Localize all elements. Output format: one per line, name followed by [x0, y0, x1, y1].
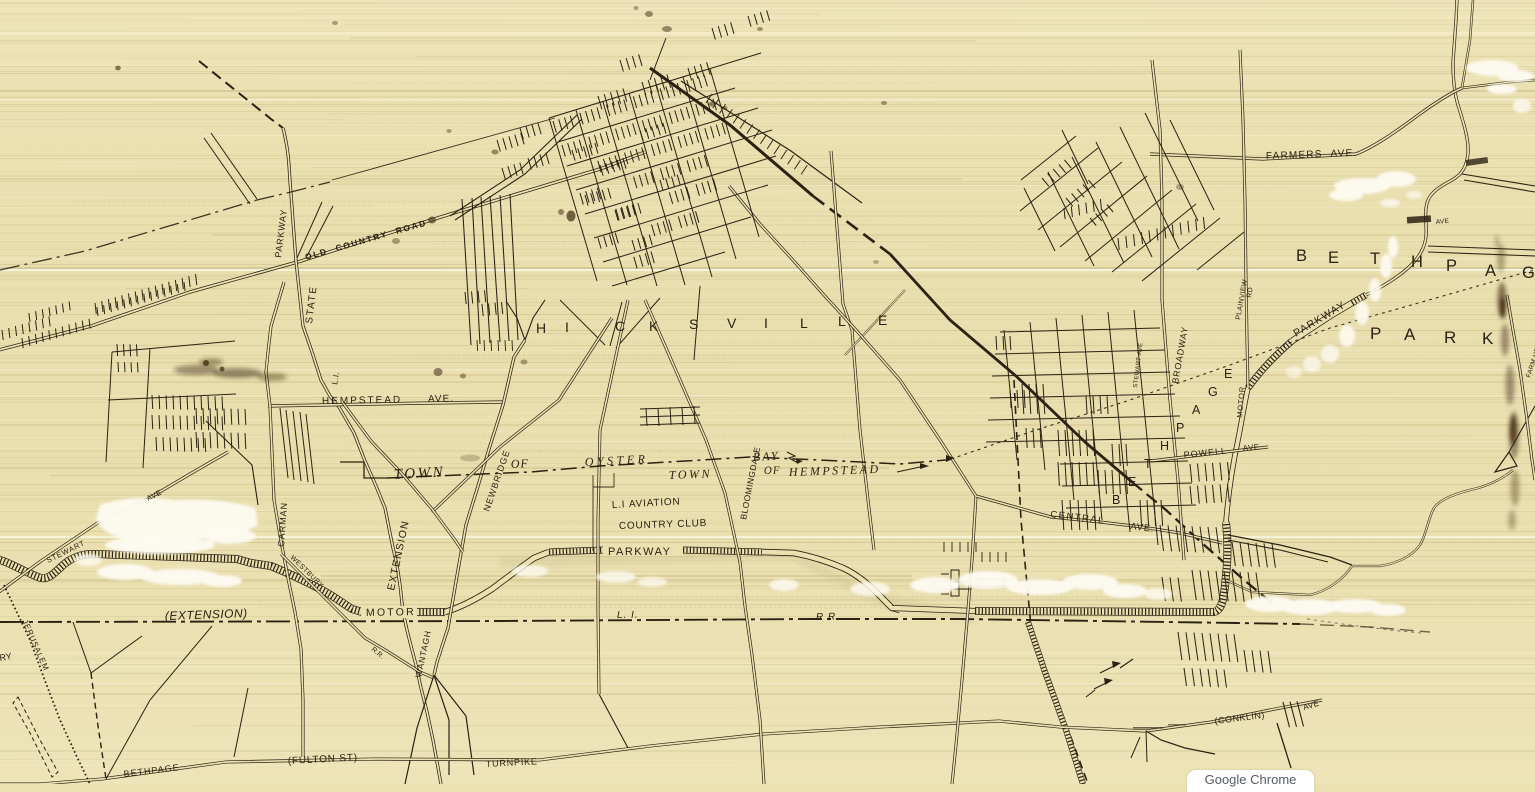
- svg-text:L: L: [800, 315, 808, 331]
- svg-text:I: I: [565, 319, 569, 335]
- svg-text:I: I: [764, 315, 768, 331]
- svg-text:L: L: [838, 313, 846, 329]
- svg-text:PARKWAY: PARKWAY: [608, 546, 671, 558]
- svg-text:E: E: [1224, 367, 1232, 381]
- svg-text:K: K: [649, 318, 659, 334]
- svg-text:G: G: [1522, 264, 1535, 282]
- svg-text:L. I.: L. I.: [617, 610, 639, 621]
- svg-text:BAY: BAY: [752, 449, 779, 464]
- svg-text:R: R: [1444, 328, 1456, 347]
- svg-text:(EXTENSION): (EXTENSION): [165, 606, 248, 623]
- svg-text:H: H: [1411, 253, 1423, 271]
- svg-text:C: C: [615, 318, 625, 334]
- svg-text:TOWN: TOWN: [669, 467, 713, 482]
- svg-text:E: E: [1128, 475, 1136, 489]
- svg-text:S: S: [689, 316, 698, 332]
- svg-text:T: T: [1370, 250, 1380, 268]
- svg-text:R R: R R: [816, 612, 836, 623]
- svg-text:A: A: [1485, 262, 1496, 280]
- svg-text:G: G: [1208, 385, 1218, 399]
- svg-text:AVE: AVE: [1435, 218, 1449, 226]
- svg-text:H: H: [1160, 439, 1169, 453]
- svg-text:P: P: [1370, 324, 1381, 343]
- svg-text:V: V: [727, 315, 737, 331]
- svg-text:A: A: [1192, 403, 1201, 417]
- svg-text:MOTOR: MOTOR: [366, 606, 416, 619]
- svg-text:A: A: [1404, 325, 1416, 344]
- svg-text:HEMPSTEAD: HEMPSTEAD: [322, 395, 402, 407]
- svg-text:OF: OF: [510, 456, 529, 471]
- svg-text:P: P: [1176, 421, 1184, 435]
- svg-text:H: H: [536, 320, 546, 336]
- svg-text:B: B: [1296, 247, 1307, 265]
- svg-text:AVE.: AVE.: [428, 394, 454, 405]
- svg-text:B: B: [1112, 493, 1120, 507]
- svg-text:E: E: [878, 312, 887, 328]
- svg-text:P: P: [1446, 257, 1457, 275]
- svg-text:OF: OF: [764, 464, 781, 477]
- svg-text:E: E: [1328, 249, 1339, 267]
- svg-text:TOWN: TOWN: [393, 464, 445, 483]
- svg-text:T: T: [1144, 457, 1152, 471]
- svg-text:K: K: [1482, 329, 1494, 348]
- svg-text:AVE: AVE: [1242, 442, 1260, 453]
